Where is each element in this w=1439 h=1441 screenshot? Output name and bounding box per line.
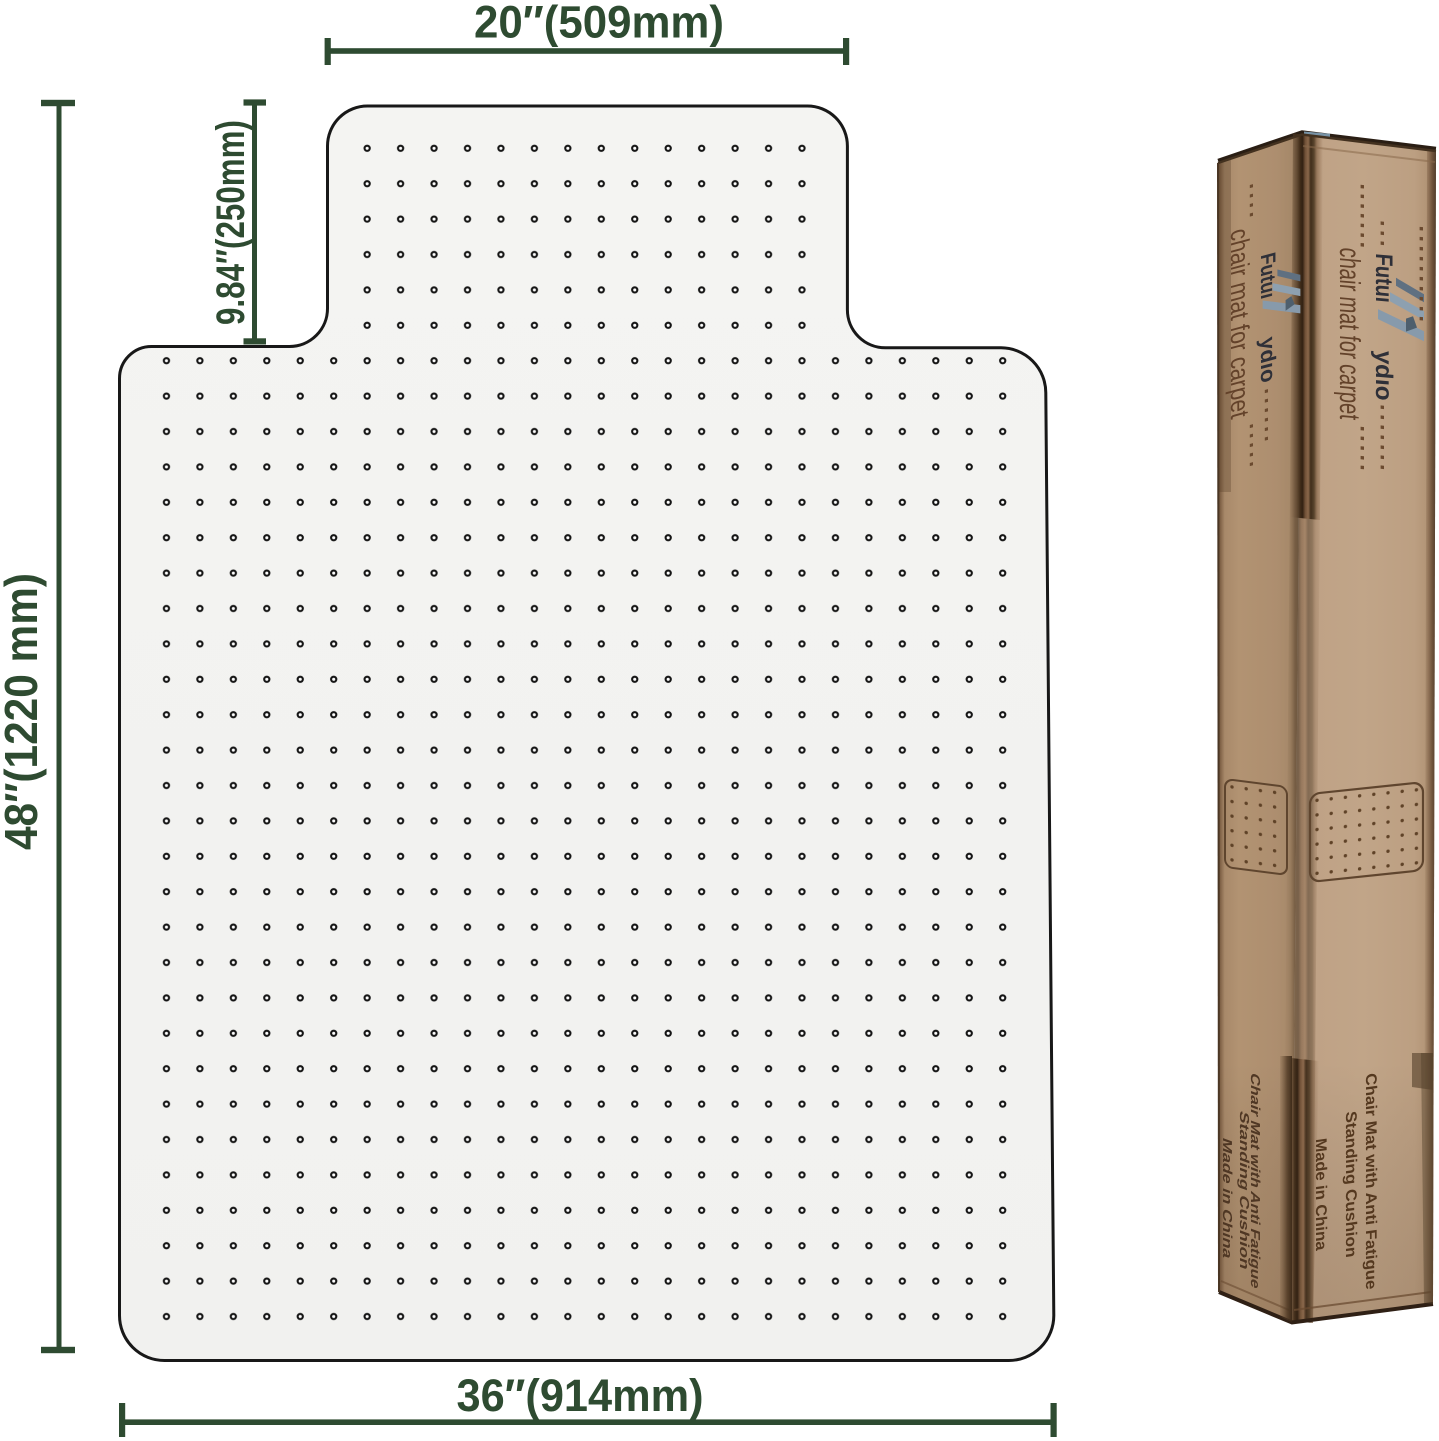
svg-text:ydıo: ydıo — [1256, 334, 1280, 385]
svg-text:chair mat for carpet: chair mat for carpet — [1333, 246, 1365, 421]
svg-text:48″(1220 mm): 48″(1220 mm) — [0, 573, 47, 850]
svg-text:Standing Cushion: Standing Cushion — [1342, 1110, 1359, 1258]
svg-text:20″(509mm): 20″(509mm) — [474, 0, 724, 48]
svg-text:Standing Cushion: Standing Cushion — [1237, 1109, 1252, 1272]
svg-text:ydıo: ydıo — [1370, 349, 1397, 401]
svg-text:Made in China: Made in China — [1312, 1137, 1329, 1252]
svg-text:Futuı: Futuı — [1256, 250, 1280, 301]
svg-text:36″(914mm): 36″(914mm) — [457, 1370, 704, 1421]
svg-text:9.84″(250mm): 9.84″(250mm) — [209, 120, 253, 325]
svg-text:Made in China: Made in China — [1220, 1136, 1235, 1262]
svg-text:Chair Mat with Anti Fatigue: Chair Mat with Anti Fatigue — [1362, 1072, 1379, 1291]
svg-text:chair mat for carpet: chair mat for carpet — [1225, 225, 1254, 422]
